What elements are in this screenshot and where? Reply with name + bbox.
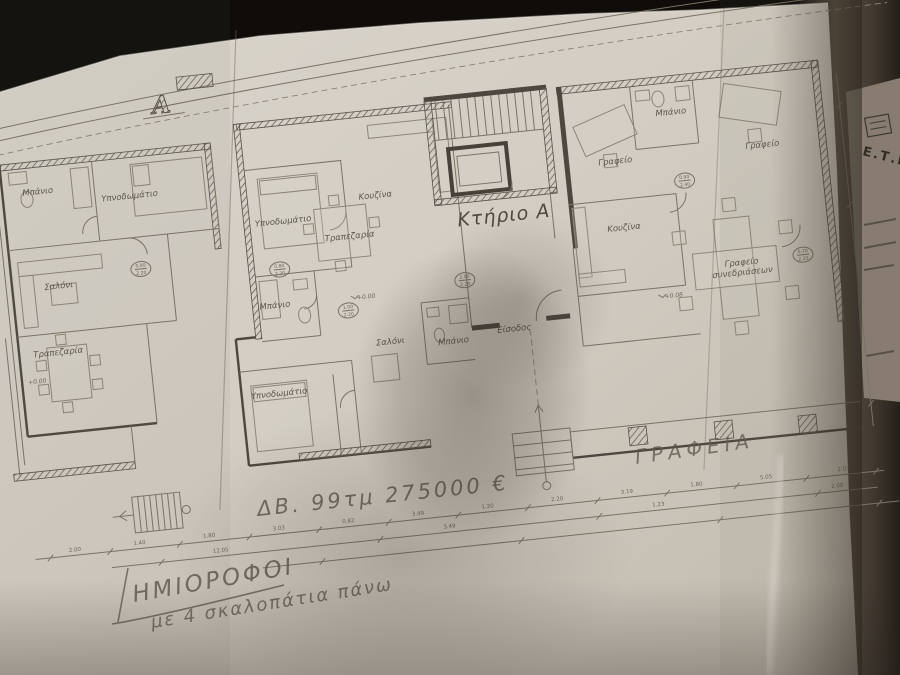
svg-text:1.00: 1.00 [343, 304, 354, 311]
svg-text:2.20: 2.20 [460, 281, 471, 288]
svg-text:2.20: 2.20 [798, 256, 809, 263]
svg-text:2.20: 2.20 [136, 270, 147, 277]
svg-text:0.80: 0.80 [274, 263, 285, 270]
dim-4: 0.82 [342, 518, 355, 525]
svg-text:2.00: 2.00 [459, 274, 470, 281]
svg-text:2.20: 2.20 [343, 311, 354, 318]
svg-text:0.90: 0.90 [135, 262, 146, 269]
floor-plan-photo: Ε.Τ.Ι Α [0, 0, 900, 675]
svg-text:0.70: 0.70 [797, 248, 808, 255]
svg-text:0.90: 0.90 [679, 174, 690, 181]
svg-text:2.40: 2.40 [680, 182, 691, 189]
svg-text:2.20: 2.20 [275, 270, 286, 277]
scene-svg: Ε.Τ.Ι Α [0, 0, 900, 675]
